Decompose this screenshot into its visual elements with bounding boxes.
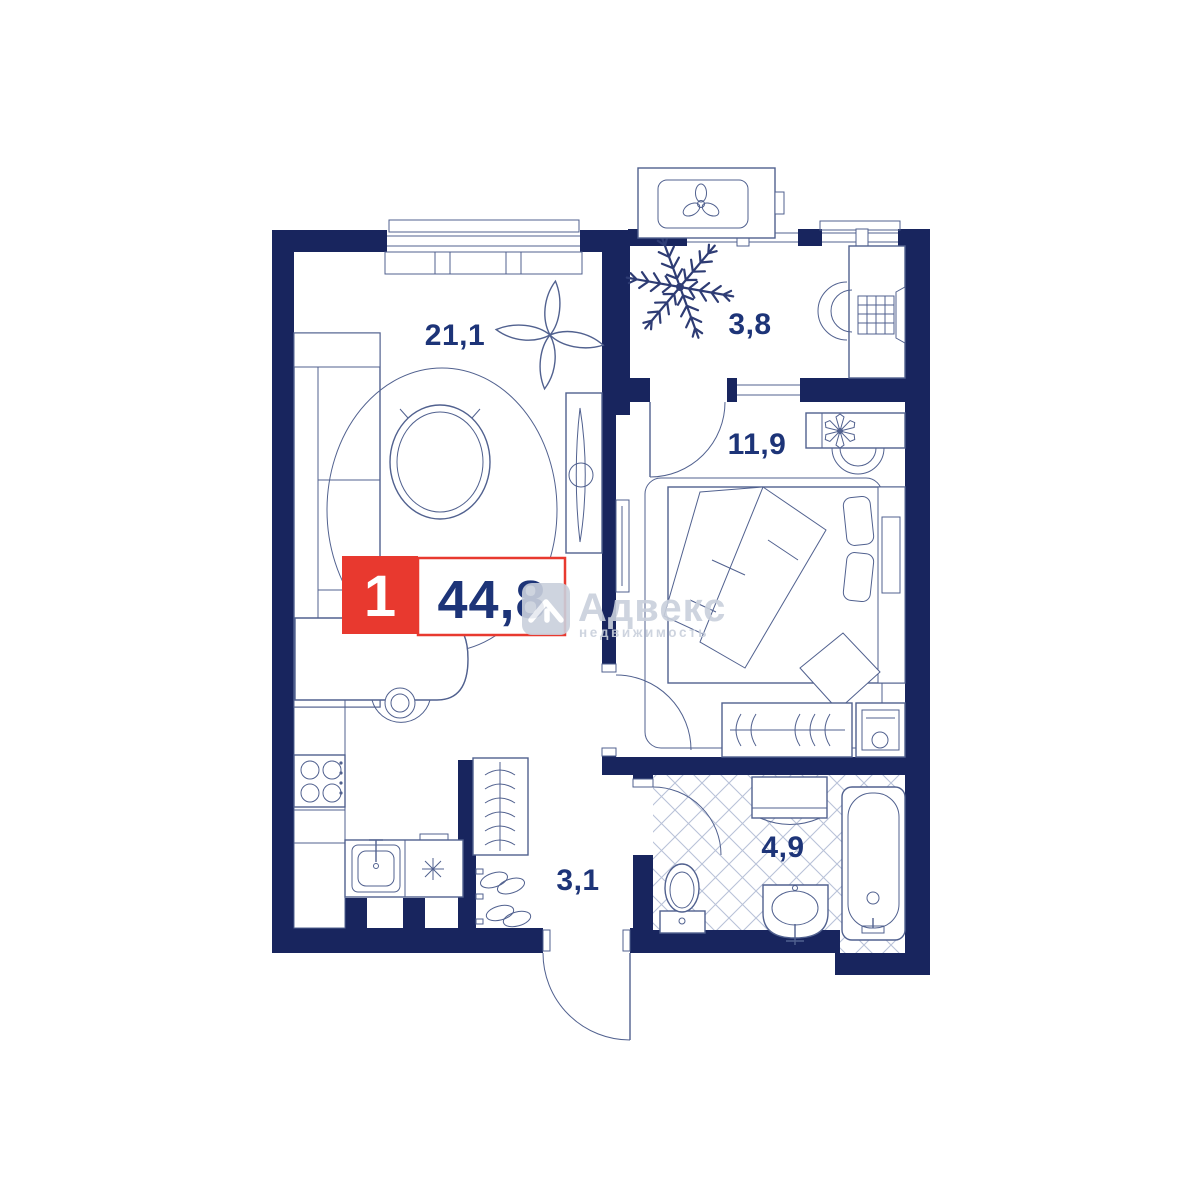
floorplan-drawing: 21,1 3,8 11,9 3,1 4,9 1 44,8 Адвекс недв…	[0, 0, 1200, 1200]
watermark-subtitle: недвижимость	[579, 625, 709, 640]
loggia-area-label: 3,8	[728, 308, 771, 341]
bedroom-table	[806, 413, 905, 448]
washing-machine	[752, 777, 827, 825]
bathroom-area-label: 4,9	[761, 831, 804, 864]
stove	[294, 755, 345, 807]
kitchen-counter	[345, 840, 463, 897]
plant-icon	[495, 280, 605, 390]
shoes	[479, 869, 533, 929]
dresser	[856, 703, 905, 757]
fern-icon	[625, 233, 734, 341]
office-chair	[818, 282, 852, 340]
wall-hooks	[476, 869, 483, 924]
loggia-window-right	[820, 221, 900, 246]
kitchen-cabinets	[294, 700, 345, 928]
bedroom-chair	[832, 448, 884, 474]
rooms-count: 1	[364, 564, 396, 629]
floorplan-page: 21,1 3,8 11,9 3,1 4,9 1 44,8 Адвекс недв…	[0, 0, 1200, 1200]
hallway-area-label: 3,1	[556, 864, 599, 897]
loggia-door	[650, 402, 725, 477]
living-area-label: 21,1	[425, 319, 485, 352]
bedroom-tv	[616, 500, 629, 592]
entry-door	[543, 930, 630, 1040]
living-window	[385, 220, 582, 274]
ac-unit	[638, 168, 784, 238]
watermark: Адвекс недвижимость	[522, 583, 726, 640]
tv-unit	[566, 393, 602, 553]
bedroom-loggia-window	[737, 385, 800, 395]
watermark-brand: Адвекс	[578, 586, 726, 630]
bedroom-area-label: 11,9	[728, 428, 787, 461]
coat-rack	[473, 758, 528, 855]
coffee-table	[390, 405, 490, 519]
wardrobe	[722, 703, 852, 757]
bathtub	[842, 787, 905, 940]
